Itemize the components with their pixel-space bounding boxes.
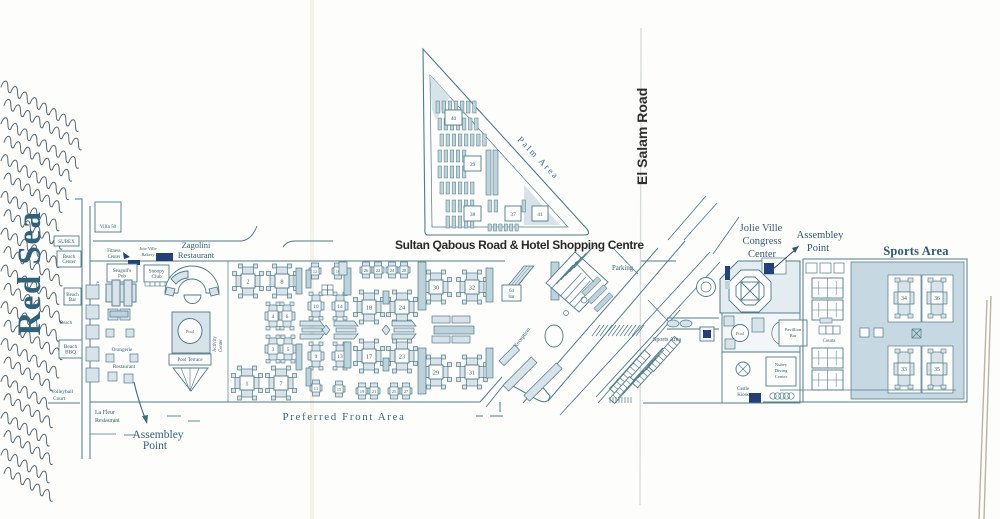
svg-text:Activity: Activity — [213, 336, 218, 352]
svg-text:Bar: Bar — [69, 298, 77, 303]
svg-text:Beach: Beach — [60, 321, 73, 326]
svg-text:19: 19 — [360, 389, 365, 394]
svg-text:Point: Point — [143, 440, 168, 452]
svg-text:33: 33 — [901, 367, 907, 373]
svg-text:22: 22 — [376, 268, 381, 273]
svg-text:10: 10 — [313, 304, 319, 310]
svg-text:Preferred Front Area: Preferred Front Area — [282, 411, 405, 423]
svg-text:9: 9 — [315, 354, 318, 360]
svg-text:12: 12 — [313, 269, 318, 274]
svg-text:18: 18 — [366, 304, 372, 311]
svg-text:Pavillion: Pavillion — [785, 327, 802, 332]
svg-text:Pub: Pub — [118, 273, 126, 279]
svg-text:37: 37 — [510, 212, 516, 218]
svg-text:15: 15 — [337, 387, 342, 392]
svg-text:32: 32 — [469, 284, 475, 291]
svg-text:Sports Area: Sports Area — [653, 337, 682, 343]
svg-text:Orangerie: Orangerie — [112, 347, 133, 353]
svg-text:Assembley: Assembley — [797, 230, 844, 241]
svg-text:23: 23 — [399, 353, 405, 360]
svg-text:38: 38 — [470, 212, 476, 218]
svg-text:Restaurant: Restaurant — [178, 250, 215, 260]
svg-text:31: 31 — [469, 369, 475, 376]
svg-text:29: 29 — [433, 369, 439, 376]
svg-text:Kiosk: Kiosk — [737, 393, 749, 398]
svg-text:25: 25 — [392, 389, 397, 394]
svg-text:5: 5 — [287, 347, 290, 353]
svg-text:bar: bar — [508, 295, 515, 300]
svg-text:Diving: Diving — [775, 368, 788, 373]
svg-text:Center: Center — [219, 339, 224, 352]
svg-text:Bakery: Bakery — [141, 252, 155, 257]
svg-text:13: 13 — [337, 354, 343, 360]
svg-text:Congress: Congress — [742, 236, 781, 247]
svg-text:Villa 50: Villa 50 — [100, 224, 117, 230]
svg-text:Nubey: Nubey — [775, 362, 788, 367]
svg-text:Red Sea: Red Sea — [12, 210, 48, 335]
svg-text:SUBEX: SUBEX — [58, 240, 75, 245]
svg-text:41: 41 — [537, 212, 543, 218]
svg-text:30: 30 — [433, 284, 439, 291]
svg-text:6: 6 — [286, 314, 289, 320]
svg-text:Pool: Pool — [736, 331, 745, 336]
svg-text:28: 28 — [402, 268, 407, 273]
svg-text:Center: Center — [775, 374, 788, 379]
svg-text:26: 26 — [364, 268, 369, 273]
svg-text:Center: Center — [62, 260, 76, 265]
svg-text:Castle: Castle — [737, 387, 749, 392]
svg-text:21: 21 — [372, 389, 377, 394]
svg-text:Pool: Pool — [186, 329, 195, 334]
svg-text:17: 17 — [366, 353, 373, 360]
svg-text:BBQ: BBQ — [65, 350, 76, 356]
svg-text:8: 8 — [280, 278, 283, 285]
svg-text:1: 1 — [245, 380, 248, 387]
svg-text:Pool Terrace: Pool Terrace — [177, 358, 203, 363]
svg-text:El Salam Road: El Salam Road — [634, 88, 650, 185]
svg-text:11: 11 — [314, 386, 319, 391]
svg-text:Jolie Ville: Jolie Ville — [740, 223, 783, 234]
svg-text:Point: Point — [807, 243, 829, 254]
svg-text:Center: Center — [108, 255, 121, 260]
svg-text:36: 36 — [934, 296, 940, 302]
svg-text:Club: Club — [151, 274, 161, 280]
svg-text:39: 39 — [470, 162, 476, 168]
svg-text:2: 2 — [246, 278, 249, 285]
svg-text:24: 24 — [399, 304, 406, 311]
svg-text:Restaurant: Restaurant — [113, 364, 136, 370]
svg-text:27: 27 — [404, 389, 409, 394]
svg-text:Restaurant: Restaurant — [95, 418, 120, 424]
svg-text:4: 4 — [272, 314, 275, 320]
svg-text:35: 35 — [934, 367, 940, 373]
svg-text:64: 64 — [509, 289, 514, 294]
svg-text:3: 3 — [272, 347, 275, 353]
svg-text:Bar: Bar — [790, 333, 797, 338]
svg-text:Sultan Qabous Road & Hotel Sho: Sultan Qabous Road & Hotel Shopping Cent… — [395, 238, 644, 252]
svg-text:40: 40 — [451, 116, 457, 122]
svg-text:Court: Court — [53, 396, 66, 402]
svg-text:24: 24 — [390, 268, 395, 273]
svg-text:Joie Ville: Joie Ville — [139, 246, 156, 251]
svg-text:Courts: Courts — [823, 339, 836, 344]
svg-text:Sports Area: Sports Area — [883, 244, 949, 258]
svg-text:Zagolini: Zagolini — [182, 240, 211, 250]
svg-text:Fitness: Fitness — [107, 249, 121, 254]
svg-text:14: 14 — [337, 304, 343, 310]
svg-text:Center: Center — [748, 249, 776, 260]
svg-text:Volleyball: Volleyball — [51, 389, 74, 395]
svg-text:34: 34 — [901, 296, 907, 302]
svg-text:La Fleur: La Fleur — [95, 410, 115, 416]
